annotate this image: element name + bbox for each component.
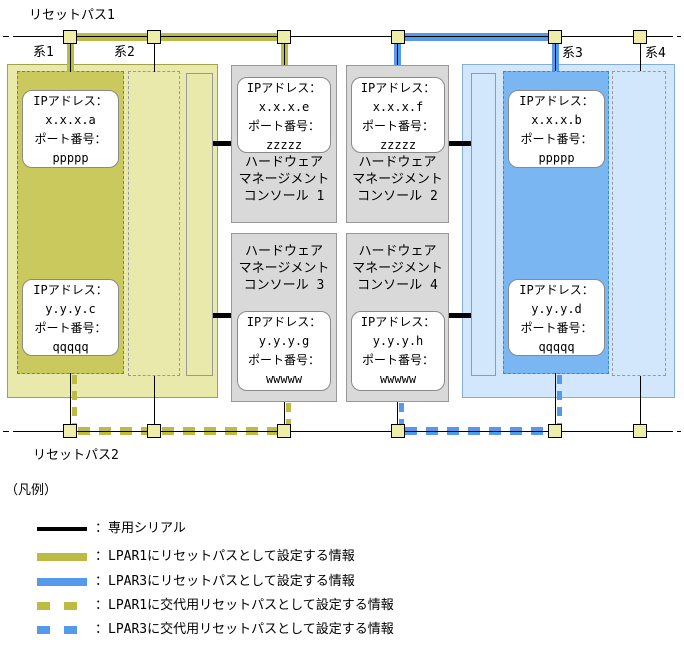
drop-lpar1-line [70,40,71,72]
hmc3-name-line: コンソール 3 [231,277,337,294]
hmc1-name: ハードウェア マネージメント コンソール 1 [231,154,337,205]
rise-lpar3-line [555,373,556,424]
hmc2-name-line: ハードウェア [346,154,449,171]
legend-item-lpar3-reset: ：LPAR3にリセットパスとして設定する情報 [95,574,355,589]
bus2-serial-line [19,431,667,432]
lpar4-region [612,71,666,376]
sp-region-ms0002 [471,73,496,376]
ip-line: IPアドレス： [238,313,330,332]
rise-lpar3-alt-band [557,375,562,424]
bus2-node-5 [548,424,562,438]
legend-item-serial: ：専用シリアル [95,521,186,536]
lpar3-ip-box-top: IPアドレス： x.x.x.b ポート番号： ppppp [508,90,605,168]
ip-line: IPアドレス： [238,79,330,98]
bus1-node-6 [633,30,647,44]
ip-line: x.x.x.b [509,111,604,130]
bus2-left-dashes [3,431,19,432]
ip-line: IPアドレス： [352,313,444,332]
drop-lpar3-line [555,40,556,71]
ip-line: zzzzz [238,136,330,155]
bus1-lpar3-reset-path-band [397,33,555,41]
reset-path-diagram: リセットパス1 系1 系2 系3 系4 LPAR1 LPAR2 SP MS000… [0,0,684,648]
bus1-node-4 [391,30,405,44]
bus1-node-1 [63,30,77,44]
hmc3-ip-box: IPアドレス： y.y.y.g ポート番号： wwwww [237,311,331,391]
legend-item-lpar1-alt-reset: ：LPAR1に交代用リセットパスとして設定する情報 [95,598,394,613]
ip-line: y.y.y.g [238,332,330,351]
lpar3-ip-box-bottom: IPアドレス： y.y.y.d ポート番号： qqqqq [508,279,605,356]
ip-line: ポート番号： [352,351,444,370]
hmc4-name-line: マネージメント [346,260,449,277]
bus2-node-6 [633,424,647,438]
ip-line: ポート番号： [509,319,604,338]
sp-region-ms0001 [186,73,213,376]
lpar1-ip-box-top: IPアドレス： x.x.x.a ポート番号： ppppp [22,90,119,168]
bus2-node-2 [147,424,161,438]
hmc2-ip-box: IPアドレス： x.x.x.f ポート番号： zzzzz [351,77,445,153]
rise-lpar4-line [640,376,641,424]
legend-swatch-lpar3-reset [37,578,87,586]
drop-lpar4-line [640,44,641,71]
hmc1-name-line: マネージメント [231,171,337,188]
legend-swatch-serial [37,527,87,531]
hmc4-name-line: ハードウェア [346,243,449,260]
hmc3-name-line: マネージメント [231,260,337,277]
ip-line: IPアドレス： [23,92,118,111]
lpar2-region [128,71,180,376]
ip-line: qqqqq [509,338,604,357]
system4-label: 系4 [645,46,666,61]
reset-path2-label: リセットパス2 [33,448,119,463]
ip-line: ポート番号： [238,117,330,136]
bus1-node-2 [147,30,161,44]
bus1-right-dashes [667,36,681,37]
bus2-node-1 [63,424,77,438]
serial-connector-hmc4-sp2 [449,313,471,318]
hmc1-name-line: ハードウェア [231,154,337,171]
rise-lpar2-line [154,376,155,424]
bus1-serial-line [19,36,667,37]
ip-line: ポート番号： [238,351,330,370]
ip-line: y.y.y.d [509,300,604,319]
ip-line: zzzzz [352,136,444,155]
bus1-node-3 [277,30,291,44]
ip-line: wwwww [352,370,444,389]
system1-label: 系1 [33,45,54,60]
legend-item-lpar1-reset: ：LPAR1にリセットパスとして設定する情報 [95,549,355,564]
serial-connector-hmc2-sp2 [449,141,471,146]
bus2-node-3 [277,424,291,438]
ip-line: y.y.y.h [352,332,444,351]
hmc4-name: ハードウェア マネージメント コンソール 4 [346,243,449,294]
rise-hmc4-alt-band [399,403,404,424]
ip-line: ポート番号： [509,130,604,149]
bus2-node-4 [391,424,405,438]
reset-path1-label: リセットパス1 [29,8,115,23]
ip-line: ポート番号： [352,117,444,136]
hmc1-ip-box: IPアドレス： x.x.x.e ポート番号： zzzzz [237,77,331,153]
rise-hmc3-line [284,402,285,424]
legend-swatch-lpar1-reset [37,553,87,561]
hmc3-name-line: ハードウェア [231,243,337,260]
ip-line: y.y.y.c [23,300,118,319]
ip-line: wwwww [238,370,330,389]
hmc2-name-line: マネージメント [346,171,449,188]
rise-lpar1-alt-band [72,375,77,424]
ip-line: IPアドレス： [509,281,604,300]
system2-label: 系2 [114,45,135,60]
hmc4-name-line: コンソール 4 [346,277,449,294]
ip-line: ppppp [509,149,604,168]
bus1-left-dashes [3,36,19,37]
system3-label: 系3 [562,46,583,61]
bus1-lpar1-reset-path-band [70,33,284,41]
legend-swatch-lpar3-alt-reset [37,626,87,634]
ip-line: IPアドレス： [352,79,444,98]
rise-lpar1-line [70,373,71,424]
ip-line: IPアドレス： [509,92,604,111]
bus1-node-5 [548,30,562,44]
ip-line: IPアドレス： [23,281,118,300]
ip-line: ppppp [23,149,118,168]
serial-connector-sp1-hmc1 [213,141,231,146]
lpar1-ip-box-bottom: IPアドレス： y.y.y.c ポート番号： qqqqq [22,279,119,356]
ip-line: x.x.x.f [352,98,444,117]
ip-line: x.x.x.a [23,111,118,130]
hmc4-ip-box: IPアドレス： y.y.y.h ポート番号： wwwww [351,311,445,391]
ip-line: x.x.x.e [238,98,330,117]
ip-line: ポート番号： [23,319,118,338]
legend-swatch-lpar1-alt-reset [37,602,87,610]
drop-lpar2-line [154,44,155,72]
serial-connector-sp1-hmc3 [213,313,231,318]
rise-hmc3-alt-band [286,403,291,424]
hmc2-name-line: コンソール 2 [346,188,449,205]
bus2-right-dashes [667,431,681,432]
legend-title: （凡例） [5,483,57,498]
legend-item-lpar3-alt-reset: ：LPAR3に交代用リセットパスとして設定する情報 [95,622,394,637]
ip-line: ポート番号： [23,130,118,149]
ip-line: qqqqq [23,338,118,357]
rise-hmc4-line [397,402,398,424]
hmc2-name: ハードウェア マネージメント コンソール 2 [346,154,449,205]
hmc3-name: ハードウェア マネージメント コンソール 3 [231,243,337,294]
hmc1-name-line: コンソール 1 [231,188,337,205]
